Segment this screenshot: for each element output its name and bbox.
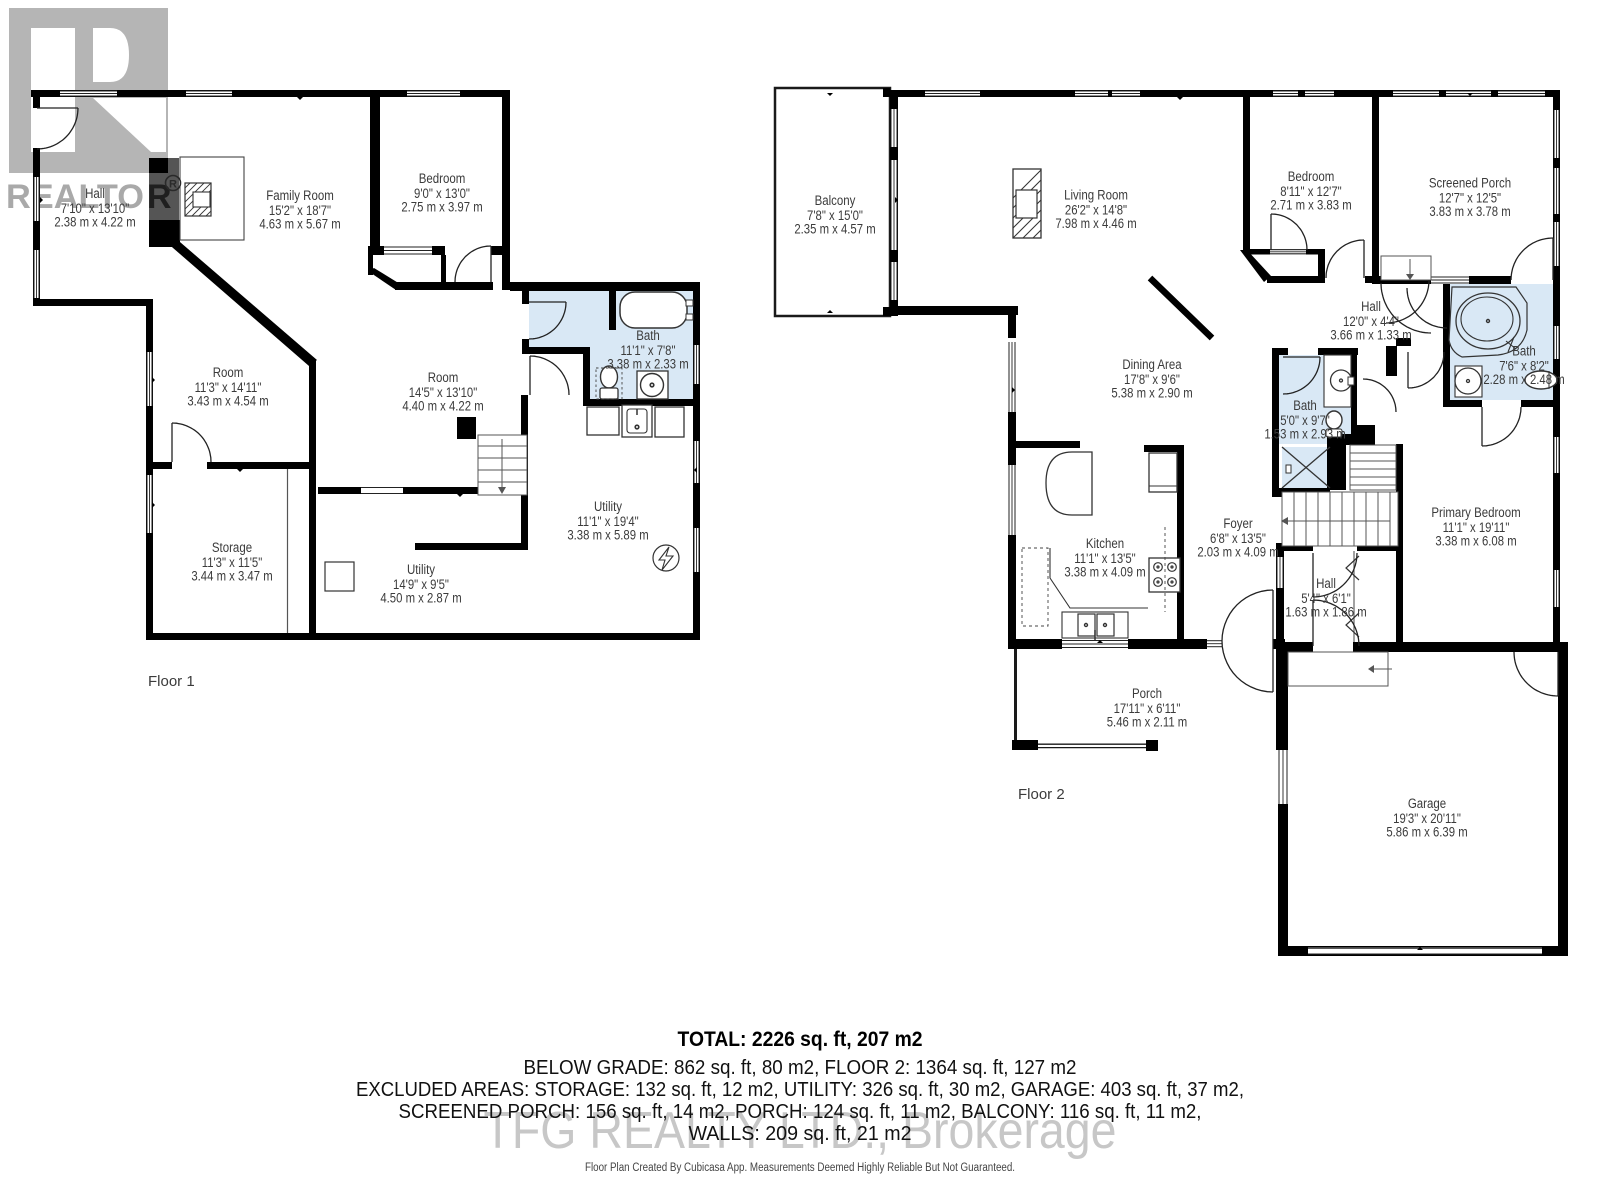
svg-text:Dining Area: Dining Area xyxy=(1122,357,1181,373)
svg-text:Foyer: Foyer xyxy=(1223,516,1253,532)
svg-text:Family Room: Family Room xyxy=(266,188,334,204)
svg-text:Room: Room xyxy=(213,365,244,381)
svg-text:Screened Porch: Screened Porch xyxy=(1429,176,1511,192)
svg-text:Hall: Hall xyxy=(1316,576,1336,592)
svg-text:4.50 m x 2.87 m: 4.50 m x 2.87 m xyxy=(380,591,461,606)
svg-text:2.38 m x 4.22 m: 2.38 m x 4.22 m xyxy=(54,215,135,230)
svg-text:2.71 m x 3.83 m: 2.71 m x 3.83 m xyxy=(1270,198,1351,213)
svg-text:Bath: Bath xyxy=(1293,398,1317,414)
svg-text:2.75 m x 3.97 m: 2.75 m x 3.97 m xyxy=(401,200,482,215)
svg-text:3.38 m x 6.08 m: 3.38 m x 6.08 m xyxy=(1435,534,1516,549)
svg-text:Hall: Hall xyxy=(85,186,105,202)
svg-text:1.63 m x 1.86 m: 1.63 m x 1.86 m xyxy=(1285,605,1366,620)
svg-text:EXCLUDED AREAS: STORAGE: 132 s: EXCLUDED AREAS: STORAGE: 132 sq. ft, 12 … xyxy=(356,1079,1244,1101)
svg-text:2.03 m x 4.09 m: 2.03 m x 4.09 m xyxy=(1197,545,1278,560)
svg-text:Kitchen: Kitchen xyxy=(1086,536,1124,552)
svg-text:Floor Plan Created By Cubicasa: Floor Plan Created By Cubicasa App. Meas… xyxy=(585,1162,1015,1174)
svg-text:3.38 m x 5.89 m: 3.38 m x 5.89 m xyxy=(567,528,648,543)
svg-text:Room: Room xyxy=(428,370,459,386)
svg-text:4.63 m x 5.67 m: 4.63 m x 5.67 m xyxy=(259,217,340,232)
svg-text:BELOW GRADE: 862 sq. ft, 80 m2: BELOW GRADE: 862 sq. ft, 80 m2, FLOOR 2:… xyxy=(524,1057,1077,1079)
svg-text:5.86 m x 6.39 m: 5.86 m x 6.39 m xyxy=(1386,825,1467,840)
svg-text:Bedroom: Bedroom xyxy=(419,171,466,187)
svg-text:3.38 m x 4.09 m: 3.38 m x 4.09 m xyxy=(1064,565,1145,580)
svg-text:SCREENED PORCH: 156 sq. ft, 14: SCREENED PORCH: 156 sq. ft, 14 m2, PORCH… xyxy=(399,1101,1202,1123)
svg-text:7.98 m x 4.46 m: 7.98 m x 4.46 m xyxy=(1055,216,1136,231)
svg-text:1.53 m x 2.93 m: 1.53 m x 2.93 m xyxy=(1264,427,1345,442)
svg-text:Utility: Utility xyxy=(407,562,436,578)
svg-text:TOTAL: 2226 sq. ft, 207 m2: TOTAL: 2226 sq. ft, 207 m2 xyxy=(678,1028,923,1051)
svg-text:3.83 m x 3.78 m: 3.83 m x 3.78 m xyxy=(1429,204,1510,219)
svg-text:Primary Bedroom: Primary Bedroom xyxy=(1431,505,1520,521)
svg-text:R: R xyxy=(147,178,172,216)
svg-text:4.40 m x 4.22 m: 4.40 m x 4.22 m xyxy=(402,399,483,414)
svg-text:Balcony: Balcony xyxy=(815,193,857,209)
svg-text:Storage: Storage xyxy=(212,540,252,556)
svg-text:3.44 m x 3.47 m: 3.44 m x 3.47 m xyxy=(191,569,272,584)
svg-text:Utility: Utility xyxy=(594,499,623,515)
svg-text:2.35 m x 4.57 m: 2.35 m x 4.57 m xyxy=(794,222,875,237)
svg-text:3.43 m x 4.54 m: 3.43 m x 4.54 m xyxy=(187,394,268,409)
svg-text:5.46 m x 2.11 m: 5.46 m x 2.11 m xyxy=(1107,715,1188,730)
svg-text:5.38 m x 2.90 m: 5.38 m x 2.90 m xyxy=(1111,386,1192,401)
svg-text:Hall: Hall xyxy=(1361,299,1381,315)
svg-text:Floor 2: Floor 2 xyxy=(1018,786,1065,803)
svg-text:Bedroom: Bedroom xyxy=(1288,169,1335,185)
svg-text:Porch: Porch xyxy=(1132,686,1162,702)
svg-text:WALLS: 209 sq. ft, 21 m2: WALLS: 209 sq. ft, 21 m2 xyxy=(689,1123,912,1145)
svg-text:3.38 m x 2.33 m: 3.38 m x 2.33 m xyxy=(607,357,688,372)
svg-text:Bath: Bath xyxy=(1512,344,1536,360)
svg-text:Bath: Bath xyxy=(636,328,660,344)
svg-text:Living Room: Living Room xyxy=(1064,188,1128,204)
svg-text:3.66 m x 1.33 m: 3.66 m x 1.33 m xyxy=(1330,328,1411,343)
svg-text:R: R xyxy=(169,179,177,191)
svg-text:Garage: Garage xyxy=(1408,796,1446,812)
svg-text:2.28 m x 2.48 m: 2.28 m x 2.48 m xyxy=(1483,372,1564,387)
svg-text:Floor 1: Floor 1 xyxy=(148,673,195,690)
